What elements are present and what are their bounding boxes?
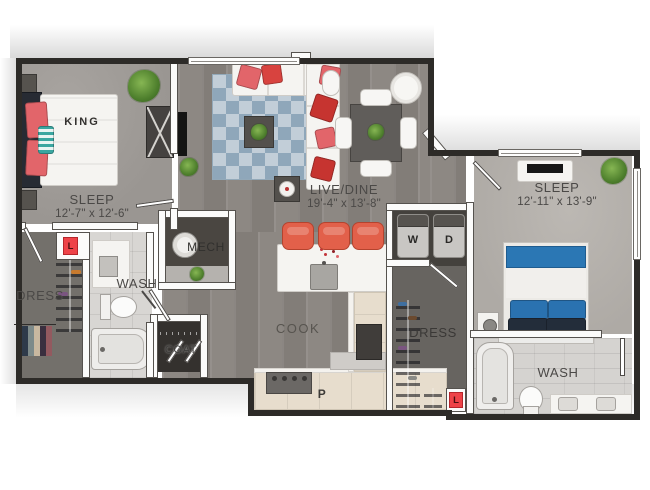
- bath2-label: WASH: [530, 366, 586, 381]
- bedroom2-label: SLEEP 12'-11" x 13'-9": [497, 181, 617, 209]
- floor-plan: KING: [0, 0, 650, 490]
- bedroom2-window-right: [633, 168, 641, 260]
- outer-wall-left: [16, 58, 22, 384]
- closet1-label: DRESS: [16, 289, 64, 304]
- closet2-shoe-rack-small: [424, 388, 442, 408]
- round-table: [390, 72, 422, 104]
- living-window: [188, 57, 300, 65]
- bar-stool-2: [318, 222, 350, 250]
- bedroom2-dimensions: 12'-11" x 13'-9": [497, 196, 617, 209]
- bedroom2-tv: [527, 164, 563, 173]
- bedroom2-window-top: [498, 149, 582, 157]
- king-bed-label: KING: [52, 116, 112, 129]
- bedroom1-room-name: SLEEP: [40, 193, 144, 208]
- bed2-pillow-blue-1: [510, 300, 548, 320]
- kitchen-sink: [310, 264, 338, 290]
- dining-chair-left: [335, 117, 352, 149]
- shadow-top: [10, 14, 434, 58]
- bedroom2-room-name: SLEEP: [497, 181, 617, 196]
- nightstand-1: [21, 74, 37, 94]
- bath2-tub: [476, 342, 514, 410]
- linen1-label: L: [68, 241, 74, 252]
- bath1-sink: [99, 256, 118, 277]
- kitchen-label: COOK: [270, 322, 326, 337]
- shadow-top-right: [434, 106, 640, 150]
- dining-chair-right: [400, 117, 417, 149]
- dining-chair-top: [360, 89, 392, 106]
- wall-bedroom1-bottom-b: [52, 222, 138, 230]
- sink-faucet: [322, 261, 326, 265]
- outer-wall-bottom-left: [16, 378, 254, 384]
- bed2-blue-throw: [506, 246, 586, 268]
- closet2-shoe-rack: [396, 300, 420, 408]
- outer-wall-bottom-center: [248, 410, 452, 416]
- sofa-pillow-red-1: [261, 63, 284, 86]
- bed2-pillow-blue-2: [548, 300, 586, 320]
- bath2-sink-right: [596, 397, 616, 411]
- washer-label: W: [398, 234, 428, 246]
- dryer-label: D: [434, 234, 464, 246]
- dryer: D: [433, 214, 465, 258]
- closet2-label: DRESS: [408, 326, 458, 341]
- shadow-left: [0, 58, 16, 384]
- mech-label: MECH: [182, 241, 230, 255]
- outer-wall-living-right: [428, 58, 434, 156]
- range-stove: [266, 372, 312, 394]
- bath1-label: WASH: [109, 277, 165, 292]
- dining-chair-bottom: [360, 160, 392, 177]
- refrigerator: [356, 324, 382, 360]
- bed2-duvet: [506, 268, 586, 298]
- linen2-closet: L: [449, 392, 463, 408]
- wall-bedroom1-right: [170, 62, 178, 154]
- wall-laundry-bottom: [386, 259, 430, 267]
- tv-screen: [178, 112, 187, 156]
- bar-stool-1: [282, 222, 314, 250]
- wall-bedroom2-bath2: [470, 330, 602, 338]
- bath1-toilet-bowl: [110, 296, 137, 318]
- bed1-pillow-teal-striped: [38, 126, 54, 154]
- linen1-closet: L: [63, 237, 78, 255]
- pantry-label: P: [310, 388, 334, 402]
- hall-floor: [430, 156, 466, 210]
- bedroom1-label: SLEEP 12'-7" x 12'-6": [40, 193, 144, 221]
- wall-bedroom1-right-stub: [170, 208, 178, 230]
- wall-bedroom2-left: [466, 202, 474, 414]
- outer-wall-bottom-right: [446, 414, 640, 420]
- living-dimensions: 19'-4" x 13'-8": [284, 198, 404, 211]
- extra-chair: [322, 70, 340, 96]
- bar-stool-3: [352, 222, 384, 250]
- nightstand-2: [21, 190, 37, 210]
- bath2-door-leaf: [620, 338, 625, 376]
- bedroom1-dimensions: 12'-7" x 12'-6": [40, 208, 144, 221]
- mech-wall-bottom: [158, 282, 236, 290]
- linen2-label: L: [453, 395, 459, 406]
- washer: W: [397, 214, 429, 258]
- coat-closet-rod: [160, 332, 198, 335]
- bath2-sink-left: [558, 397, 578, 411]
- coat-label: COAT: [159, 344, 203, 357]
- living-label: LIVE/DINE 19'-4" x 13'-8": [284, 183, 404, 211]
- wall-bath1-right-lower: [146, 322, 154, 378]
- bath1-tub: [91, 328, 151, 370]
- wall-kitchen-closet2: [386, 206, 393, 412]
- living-room-name: LIVE/DINE: [284, 183, 404, 198]
